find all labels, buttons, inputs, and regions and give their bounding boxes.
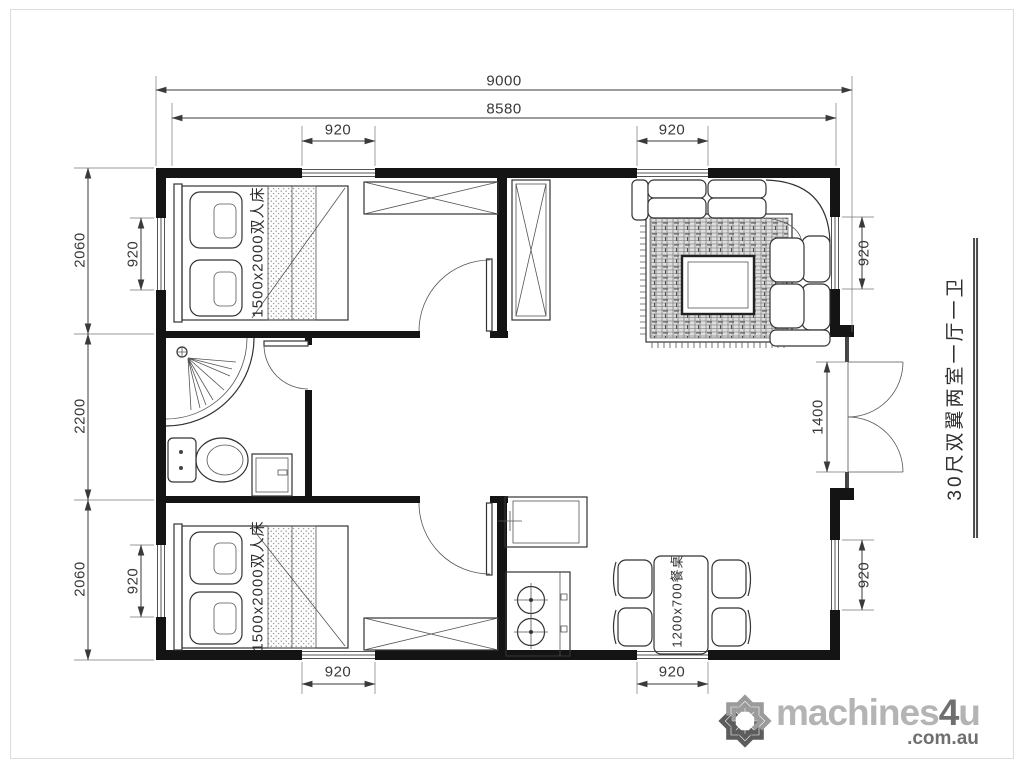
dim-window-right-living: 920 bbox=[857, 240, 872, 267]
kitchen-sink bbox=[498, 497, 587, 547]
dim-bath-zone-depth: 2200 bbox=[73, 398, 88, 433]
shower bbox=[166, 338, 254, 426]
dim-window-top-living: 920 bbox=[659, 123, 686, 138]
dim-window-left-top: 920 bbox=[126, 241, 141, 268]
bathroom-door bbox=[264, 341, 308, 389]
dim-overall-width: 9000 bbox=[486, 74, 521, 89]
dim-window-bottom-dining: 920 bbox=[659, 665, 686, 680]
dim-window-right-dining: 920 bbox=[857, 562, 872, 589]
dim-room-depth-bottom: 2060 bbox=[73, 561, 88, 596]
dim-room-depth-top: 2060 bbox=[73, 232, 88, 267]
coffee-table bbox=[682, 256, 754, 314]
bed-top-label: 1500x2000双人床 bbox=[251, 186, 266, 317]
entry-double-door bbox=[848, 337, 903, 488]
plan-title: 30尺双翼两室一厅一卫 bbox=[946, 238, 978, 538]
floorplan-page: 9000 8580 920 920 2060 2200 2060 920 920… bbox=[0, 0, 1024, 768]
tall-cabinet bbox=[512, 180, 550, 320]
bed-bottom-label: 1500x2000双人床 bbox=[251, 520, 266, 651]
machines4u-watermark: machines4u .com.au bbox=[718, 694, 980, 748]
bathroom-vanity bbox=[252, 454, 292, 496]
bedroom-top-door bbox=[419, 259, 492, 331]
wardrobe-top bbox=[364, 182, 498, 214]
logo-brand-text: machines4u bbox=[776, 694, 980, 731]
dim-window-bottom-bedroom: 920 bbox=[325, 665, 352, 680]
logo-domain-text: .com.au bbox=[776, 729, 980, 748]
wardrobe-bottom bbox=[364, 618, 498, 650]
dining-table-label: 1200x700餐桌 bbox=[671, 554, 684, 647]
dim-window-top-bedroom: 920 bbox=[325, 123, 352, 138]
stove bbox=[506, 572, 570, 656]
snowflake-logo-icon bbox=[718, 694, 772, 748]
bedroom-bottom-door bbox=[419, 503, 492, 575]
dim-entry-door-width: 1400 bbox=[811, 399, 826, 434]
dim-usable-width: 8580 bbox=[486, 102, 521, 117]
toilet bbox=[168, 438, 248, 482]
dim-window-left-bottom: 920 bbox=[126, 568, 141, 595]
